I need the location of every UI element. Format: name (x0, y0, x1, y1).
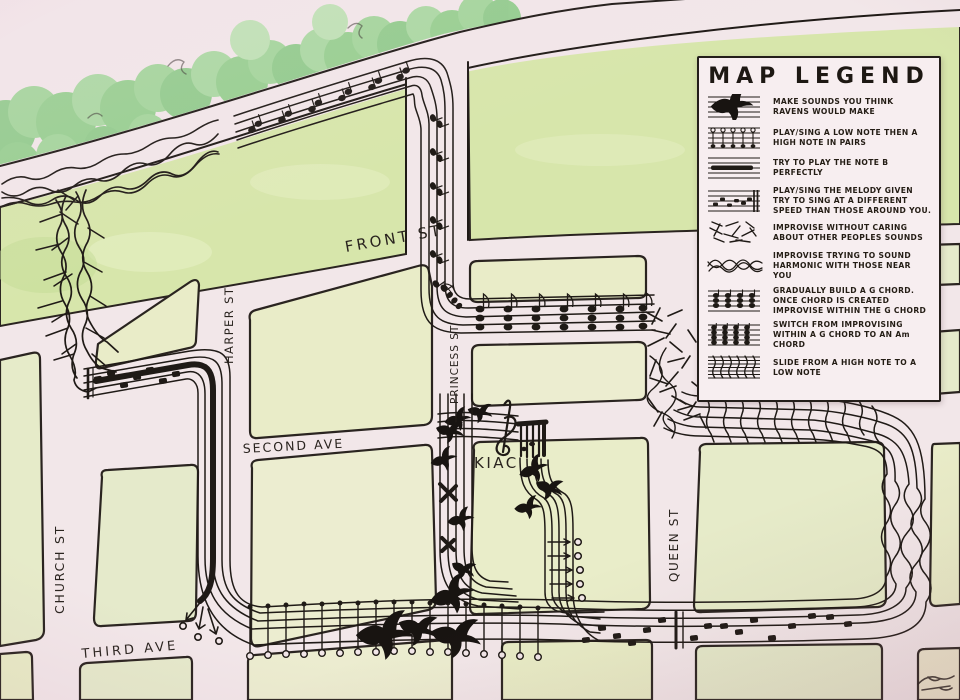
city-block (694, 442, 886, 612)
raven-sounds-icon (706, 94, 766, 120)
city-block (696, 644, 882, 700)
g-chord-icon (706, 288, 766, 314)
legend-item-ravens: MAKE SOUNDS YOU THINK RAVENS WOULD MAKE (706, 94, 932, 120)
legend-item-label: GRADUALLY BUILD A G CHORD. ONCE CHORD IS… (773, 286, 932, 316)
legend-item-label: IMPROVISE TRYING TO SOUND HARMONIC WITH … (773, 251, 932, 281)
legend-item-label: TRY TO PLAY THE NOTE B PERFECTLY (773, 158, 932, 178)
legend-item-melody: PLAY/SING THE MELODY GIVEN TRY TO SING A… (706, 186, 932, 216)
street-label-church-st: CHURCH ST (52, 525, 67, 614)
city-block (94, 465, 198, 626)
melody-icon (706, 188, 766, 214)
city-block (472, 342, 646, 406)
low-high-pairs-icon (706, 125, 766, 151)
city-block (918, 648, 960, 700)
legend-item-pairs: PLAY/SING A LOW NOTE THEN A HIGH NOTE IN… (706, 125, 932, 151)
street-label-princess-st: PRINCESS ST (449, 325, 461, 404)
free-improv-icon (706, 220, 766, 246)
legend-item-g-chord: GRADUALLY BUILD A G CHORD. ONCE CHORD IS… (706, 286, 932, 316)
legend-title: MAP LEGEND (706, 64, 932, 89)
legend-item-am-chord: SWITCH FROM IMPROVISING WITHIN A G CHORD… (706, 320, 932, 350)
note-b-icon (706, 155, 766, 181)
legend-item-label: MAKE SOUNDS YOU THINK RAVENS WOULD MAKE (773, 97, 932, 117)
map-legend: MAP LEGEND MAKE SOUNDS YOU THINK RAVENS … (697, 56, 941, 402)
harmonic-improv-icon (706, 253, 766, 279)
hand-drawn-music-map: FRONT ST SECOND AVE THIRD AVE CHURCH ST … (0, 0, 960, 700)
street-label-harper-st: HARPER ST (222, 287, 236, 364)
city-block (930, 443, 960, 606)
legend-item-harmonic-improv: IMPROVISE TRYING TO SOUND HARMONIC WITH … (706, 251, 932, 281)
legend-item-label: SWITCH FROM IMPROVISING WITHIN A G CHORD… (773, 320, 932, 350)
slide-icon (706, 355, 766, 381)
legend-item-label: SLIDE FROM A HIGH NOTE TO A LOW NOTE (773, 358, 932, 378)
landmark-label-kiac: KIAC (474, 454, 519, 472)
legend-item-note-b: TRY TO PLAY THE NOTE B PERFECTLY (706, 155, 932, 181)
legend-item-label: PLAY/SING THE MELODY GIVEN TRY TO SING A… (773, 186, 932, 216)
city-block (80, 657, 192, 700)
street-label-queen-st: QUEEN ST (667, 508, 681, 582)
city-block (502, 640, 652, 700)
city-block (0, 652, 33, 700)
legend-item-label: PLAY/SING A LOW NOTE THEN A HIGH NOTE IN… (773, 128, 932, 148)
g-to-am-chord-icon (706, 322, 766, 348)
legend-item-slide: SLIDE FROM A HIGH NOTE TO A LOW NOTE (706, 355, 932, 381)
legend-item-free-improv: IMPROVISE WITHOUT CARING ABOUT OTHER PEO… (706, 220, 932, 246)
city-block (0, 353, 44, 646)
legend-item-label: IMPROVISE WITHOUT CARING ABOUT OTHER PEO… (773, 223, 932, 243)
